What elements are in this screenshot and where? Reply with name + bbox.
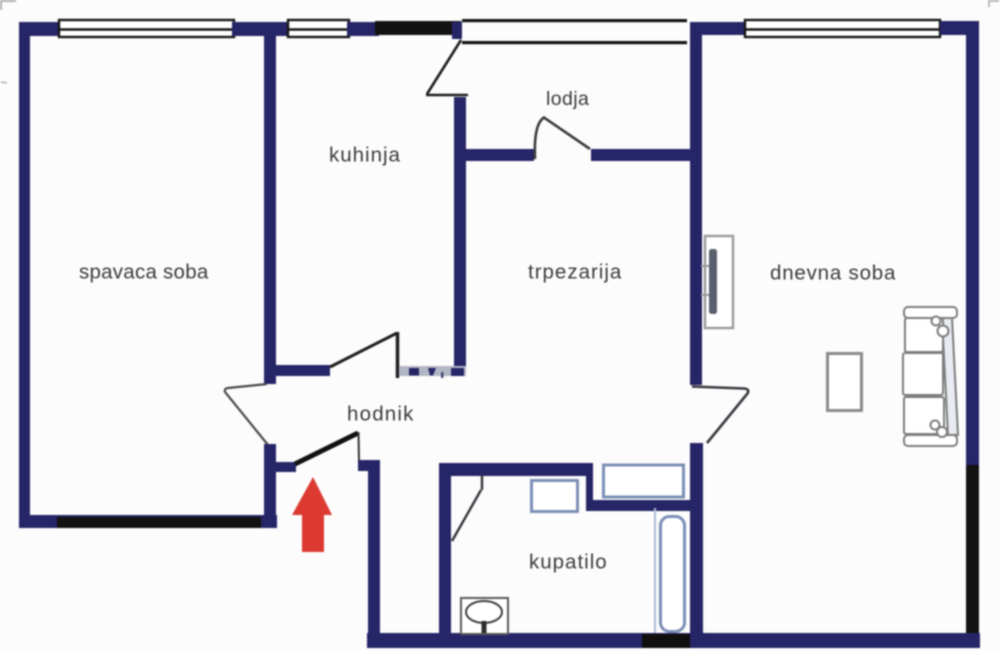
svg-text:dnevna soba: dnevna soba — [770, 262, 896, 285]
svg-text:kupatilo: kupatilo — [529, 551, 608, 574]
svg-text:trpezarija: trpezarija — [528, 261, 622, 284]
svg-text:kuhinja: kuhinja — [329, 144, 401, 167]
svg-text:spavaca soba: spavaca soba — [79, 261, 209, 284]
svg-text:lodja: lodja — [546, 88, 589, 110]
svg-text:hodnik: hodnik — [347, 403, 415, 426]
